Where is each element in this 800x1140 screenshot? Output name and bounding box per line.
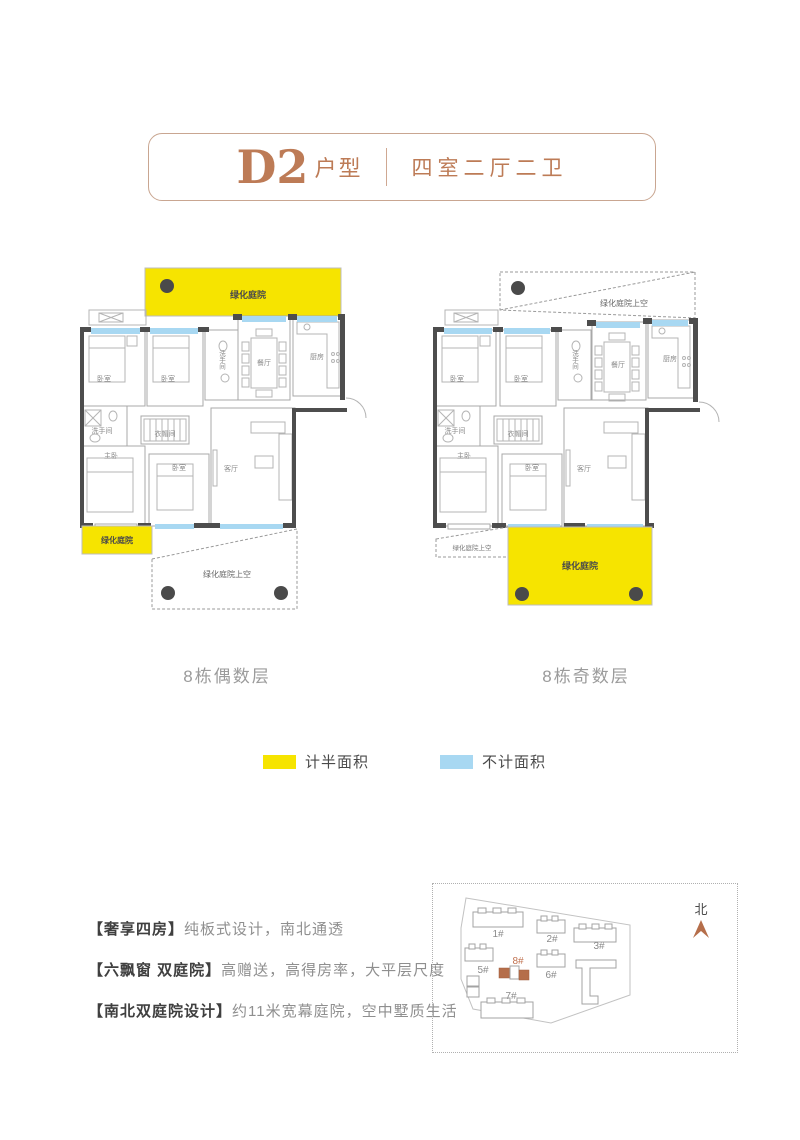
building-8-highlight xyxy=(499,966,529,980)
column-marker xyxy=(160,279,174,293)
site-map: 1# 2# 3# 5# 6# 7# 8# 北 xyxy=(432,883,738,1053)
north-arrow-icon xyxy=(693,920,709,938)
feature-item: 【奢享四房】纯板式设计，南北通透 xyxy=(88,918,448,939)
building-label-5: 5# xyxy=(477,965,489,976)
building-label-7: 7# xyxy=(505,991,517,1002)
courtyard-open-air-top: 绿化庭院上空 xyxy=(500,272,695,318)
building-label-6: 6# xyxy=(545,970,557,981)
room-label-bedroom: 卧室 xyxy=(450,374,464,383)
legend-swatch-yellow xyxy=(263,755,296,769)
room-label-kitchen: 厨房 xyxy=(310,352,324,361)
feature-tag: 【六飘窗 双庭院】 xyxy=(88,962,221,979)
feature-desc: 纯板式设计，南北通透 xyxy=(184,921,344,938)
title-divider xyxy=(386,148,387,186)
room-label-kitchen: 厨房 xyxy=(663,354,677,363)
brochure-page: D2 户型 四室二厅二卫 绿化庭院 xyxy=(0,0,800,1140)
courtyard-top: 绿化庭院 xyxy=(145,268,341,316)
floorplan-odd-floors: 绿化庭院上空 xyxy=(432,258,752,628)
courtyard-bottom-label: 绿化庭院 xyxy=(101,535,133,545)
room-label-bath: 洗手间 xyxy=(445,426,466,435)
room-label-living: 客厅 xyxy=(224,464,238,473)
column-marker xyxy=(511,281,525,295)
feature-tag: 【奢享四房】 xyxy=(88,921,184,938)
room-label-bedroom: 卧室 xyxy=(161,374,175,383)
building-label-8: 8# xyxy=(512,956,524,967)
plan-code-suffix: 户型 xyxy=(314,151,362,183)
caption-odd-floors: 8栋奇数层 xyxy=(486,662,686,687)
site-map-drawing: 1# 2# 3# 5# 6# 7# 8# 北 xyxy=(433,884,737,1052)
building-label-2: 2# xyxy=(546,934,558,945)
legend-swatch-blue xyxy=(440,755,473,769)
feature-desc: 高赠送，高得房率，大平层尺度 xyxy=(221,962,445,979)
room-label-bedroom: 卧室 xyxy=(525,463,539,472)
column-marker xyxy=(161,586,175,600)
building-footprints xyxy=(465,908,616,1018)
courtyard-bottom: 绿化庭院 xyxy=(508,527,652,605)
legend-half-area: 计半面积 xyxy=(263,751,369,772)
column-marker xyxy=(629,587,643,601)
room-label-dining: 餐厅 xyxy=(611,360,625,369)
floorplan-even-floors: 绿化庭院 xyxy=(55,258,375,628)
feature-tag: 【南北双庭院设计】 xyxy=(88,1003,232,1020)
legend-excluded-area: 不计面积 xyxy=(440,751,546,772)
open-air-label: 绿化庭院上空 xyxy=(203,569,251,579)
title-box: D2 户型 四室二厅二卫 xyxy=(148,133,656,201)
building-label-1: 1# xyxy=(492,929,504,940)
courtyard-open-air-bottom: 绿化庭院上空 xyxy=(436,527,508,557)
room-label-master: 主卧 xyxy=(457,451,471,460)
courtyard-label: 绿化庭院 xyxy=(562,560,598,571)
legend-half-area-label: 计半面积 xyxy=(305,751,369,772)
ac-platform xyxy=(89,310,146,325)
legend-excluded-area-label: 不计面积 xyxy=(482,751,546,772)
courtyard-bottom: 绿化庭院 xyxy=(82,526,152,554)
room-outlines xyxy=(436,320,694,526)
room-label-closet: 衣帽间 xyxy=(508,429,529,438)
room-label-bath: 洗手间 xyxy=(92,426,113,435)
room-label-bedroom: 卧室 xyxy=(172,463,186,472)
feature-item: 【南北双庭院设计】约11米宽幕庭院，空中墅质生活 xyxy=(88,1000,448,1021)
column-marker xyxy=(515,587,529,601)
ac-platform xyxy=(445,310,498,325)
room-label-closet: 衣帽间 xyxy=(155,429,176,438)
north-indicator: 北 xyxy=(693,902,709,938)
plan-code: D2 xyxy=(237,144,309,190)
column-marker xyxy=(274,586,288,600)
feature-item: 【六飘窗 双庭院】高赠送，高得房率，大平层尺度 xyxy=(88,959,448,980)
plan-room-summary: 四室二厅二卫 xyxy=(411,152,567,182)
courtyard-open-air: 绿化庭院上空 xyxy=(152,529,297,609)
feature-desc: 约11米宽幕庭院，空中墅质生活 xyxy=(232,1003,458,1020)
room-label-master: 主卧 xyxy=(104,451,118,460)
open-air-label: 绿化庭院上空 xyxy=(453,543,493,552)
building-label-3: 3# xyxy=(593,941,605,952)
caption-even-floors: 8栋偶数层 xyxy=(127,662,327,687)
open-air-label: 绿化庭院上空 xyxy=(600,298,648,308)
room-label-bedroom: 卧室 xyxy=(514,374,528,383)
room-label-living: 客厅 xyxy=(577,464,591,473)
room-label-bedroom: 卧室 xyxy=(97,374,111,383)
courtyard-top-label: 绿化庭院 xyxy=(230,289,266,300)
room-label-dining: 餐厅 xyxy=(257,358,271,367)
feature-list: 【奢享四房】纯板式设计，南北通透 【六飘窗 双庭院】高赠送，高得房率，大平层尺度… xyxy=(88,918,448,1041)
north-label: 北 xyxy=(694,902,707,917)
